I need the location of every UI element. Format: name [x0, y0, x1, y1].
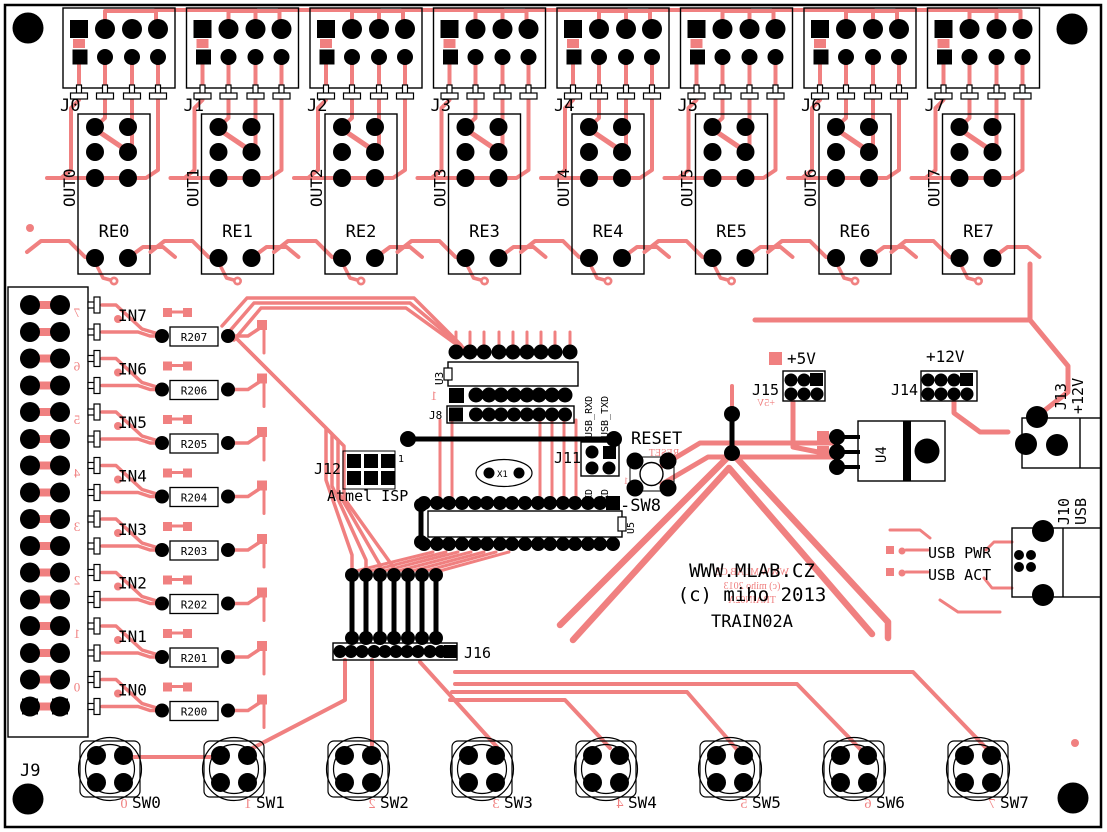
mirror-digit: 4: [617, 797, 624, 812]
switch-label: SW4: [628, 793, 657, 812]
resistor-label: R203: [181, 545, 208, 558]
relay-label: RE0: [99, 222, 130, 242]
input-label: IN4: [118, 467, 147, 486]
connector-label: J5: [678, 96, 698, 116]
connector-label: J2: [307, 96, 327, 116]
output-label: OUT7: [925, 168, 944, 207]
connector-label: J1: [184, 96, 204, 116]
output-label: OUT6: [801, 168, 820, 207]
switch-label: SW3: [504, 793, 533, 812]
u3-label: U3: [433, 372, 446, 385]
input-label: IN2: [118, 574, 147, 593]
switch-label: SW5: [752, 793, 781, 812]
j13-label: J13: [1052, 383, 1070, 410]
resistor-label: R200: [181, 706, 208, 719]
relay-label: RE4: [593, 222, 624, 242]
u3-pin1-label: 1: [431, 388, 438, 403]
resistor-label: R205: [181, 438, 208, 451]
usb-txd-label: USB_TXD: [600, 396, 611, 438]
input-label: IN7: [118, 306, 147, 325]
connector-label: J7: [925, 96, 945, 116]
reset-label: RESET: [631, 429, 682, 449]
pcb-board-svg: J0 OUT0 RE0 J1 OUT1 RE1 J2 OUT2 RE2 J3 O…: [0, 0, 1107, 832]
input-label: IN0: [118, 681, 147, 700]
plus5v-label: +5V: [787, 349, 816, 368]
pcb-layout-screenshot: J0 OUT0 RE0 J1 OUT1 RE1 J2 OUT2 RE2 J3 O…: [0, 0, 1107, 832]
resistor-label: R201: [181, 652, 208, 665]
resistor-label: R206: [181, 385, 208, 398]
j11-label: J11: [554, 449, 581, 467]
mirror-digit: 5: [74, 412, 81, 427]
relay-label: RE6: [840, 222, 871, 242]
j10-usb-label: USB: [1072, 498, 1090, 525]
usb-act-label: USB ACT: [928, 566, 991, 584]
j8-footprint: J8: [429, 406, 574, 423]
switch-label: SW0: [132, 793, 161, 812]
j15-footprint: [783, 371, 825, 401]
x1-crystal: X1: [476, 460, 532, 487]
plus5v-pad: [769, 352, 782, 365]
mirror-digit: 7: [73, 305, 80, 320]
j13-voltage-label: +12V: [1069, 378, 1087, 414]
mirror-digit: 5: [741, 797, 748, 812]
x1-label: X1: [497, 470, 508, 480]
mirror-digit: 0: [121, 797, 128, 812]
j8-label: J8: [429, 409, 442, 422]
mirror-digit: 1: [245, 797, 252, 812]
output-label: OUT2: [307, 168, 326, 207]
mirror-digit: 4: [73, 466, 80, 481]
output-label: OUT4: [554, 168, 573, 207]
j10-label: J10: [1055, 498, 1073, 525]
relay-label: RE3: [469, 222, 500, 242]
brand-copyright: (c) miho 2013: [678, 584, 827, 606]
u4-label: U4: [874, 446, 890, 463]
connector-label: J6: [801, 96, 821, 116]
relay-label: RE5: [716, 222, 747, 242]
switch-label: SW7: [1000, 793, 1029, 812]
brand-url: WWW.MLAB.CZ: [689, 560, 815, 582]
switch-label: SW6: [876, 793, 905, 812]
atmel-isp-label: Atmel ISP: [327, 487, 408, 505]
sw8-mirror-label: 1: [624, 476, 629, 486]
mounting-hole-bottom-left: [13, 784, 44, 815]
mounting-hole-top-right: [1057, 14, 1088, 45]
sw8-label: -SW8: [620, 496, 661, 516]
switch-label: SW1: [256, 793, 285, 812]
input-label: IN5: [118, 413, 147, 432]
usb-pwr-label: USB PWR: [928, 544, 992, 562]
output-label: OUT0: [60, 168, 79, 207]
input-label: IN3: [118, 520, 147, 539]
relay-label: RE1: [222, 222, 253, 242]
output-label: OUT3: [431, 168, 450, 207]
relay-label: RE7: [963, 222, 994, 242]
usb-rxd-label: USB_RXD: [584, 396, 595, 438]
mirror-digit: 6: [73, 359, 80, 374]
output-label: OUT5: [678, 168, 697, 207]
connector-label: J4: [554, 96, 574, 116]
j9-label: J9: [20, 761, 40, 781]
mirror-digit: 3: [74, 519, 81, 534]
mirror-digit: 0: [74, 680, 81, 695]
input-label: IN6: [118, 360, 147, 379]
j16-label: J16: [464, 644, 491, 662]
mirror-digit: 2: [369, 797, 376, 812]
relay-label: RE2: [346, 222, 377, 242]
plus5v-mirror-label: +5V: [756, 398, 775, 409]
switch-label: SW2: [380, 793, 409, 812]
resistor-label: R202: [181, 599, 208, 612]
mirror-digit: 1: [74, 626, 81, 641]
connector-label: J0: [60, 96, 80, 116]
mirror-digit: 3: [493, 797, 500, 812]
j9-pin1-pad: [22, 699, 38, 715]
brand-board-name: TRAIN02A: [711, 612, 793, 632]
j12-label: J12: [314, 460, 341, 478]
j12-pin1-label: 1: [398, 454, 404, 465]
mounting-hole-bottom-right: [1058, 783, 1089, 814]
mirror-digit: 7: [989, 797, 996, 812]
mirror-digit: 6: [865, 797, 872, 812]
output-label: OUT1: [184, 168, 203, 207]
input-label: IN1: [118, 627, 147, 646]
plus12v-label: +12V: [926, 347, 965, 366]
mounting-hole-top-left: [13, 13, 44, 44]
resistor-label: R204: [181, 492, 208, 505]
mirror-digit: 2: [74, 573, 81, 588]
resistor-label: R207: [181, 331, 208, 344]
j15-label: J15: [752, 381, 779, 399]
j14-label: J14: [891, 381, 918, 399]
connector-label: J3: [431, 96, 451, 116]
u5-label: U5: [626, 522, 637, 534]
j9-pin2-pad: [52, 699, 68, 715]
